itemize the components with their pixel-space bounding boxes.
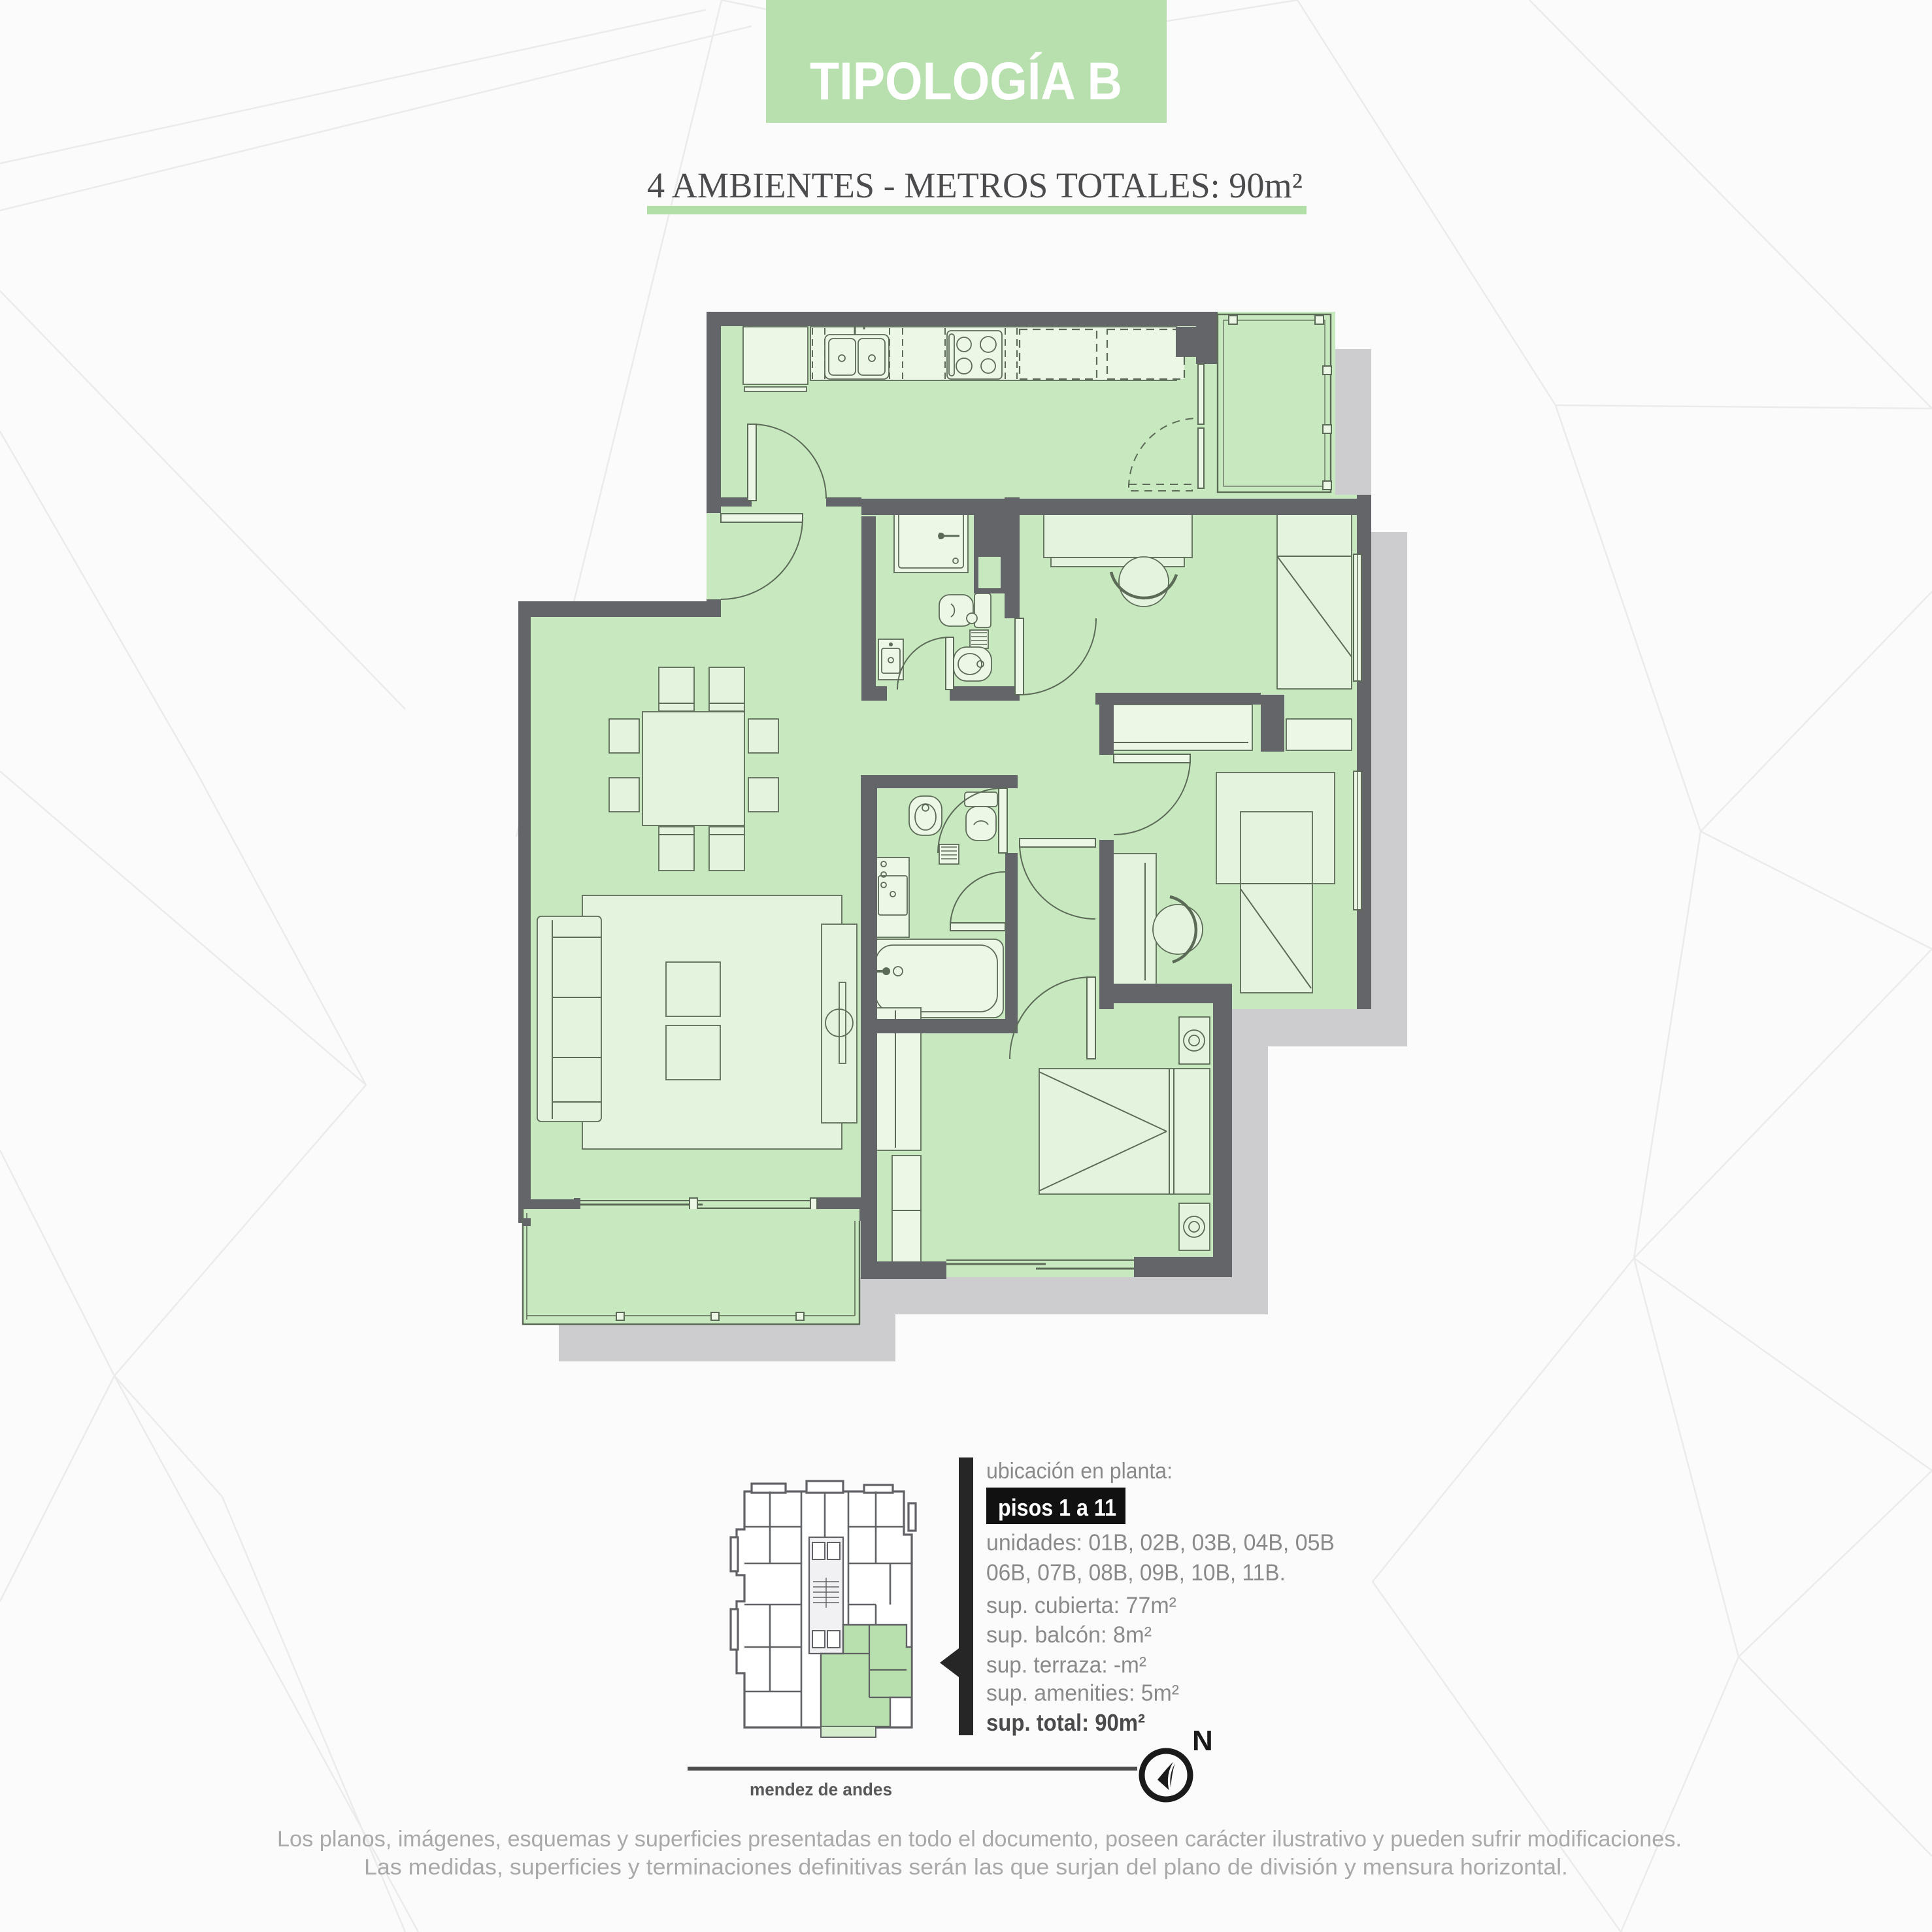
svg-text:TIPOLOGÍA B: TIPOLOGÍA B — [810, 52, 1122, 111]
svg-text:sup. total: 90m²: sup. total: 90m² — [986, 1709, 1145, 1736]
svg-text:sup. balcón: 8m²: sup. balcón: 8m² — [986, 1622, 1152, 1648]
svg-text:06B, 07B, 08B, 09B, 10B, 11B.: 06B, 07B, 08B, 09B, 10B, 11B. — [986, 1560, 1286, 1586]
svg-text:mendez de andes: mendez de andes — [750, 1780, 892, 1799]
svg-text:sup. cubierta: 77m²: sup. cubierta: 77m² — [986, 1593, 1176, 1618]
svg-text:sup. amenities: 5m²: sup. amenities: 5m² — [986, 1680, 1179, 1706]
svg-text:pisos 1 a 11: pisos 1 a 11 — [998, 1494, 1116, 1521]
svg-text:Los planos, imágenes, esquemas: Los planos, imágenes, esquemas y superfi… — [277, 1827, 1682, 1852]
svg-text:N: N — [1192, 1725, 1213, 1757]
svg-text:sup. terraza: -m²: sup. terraza: -m² — [986, 1652, 1146, 1678]
svg-text:ubicación en planta:: ubicación en planta: — [986, 1459, 1173, 1484]
svg-text:unidades: 01B, 02B, 03B, 04B,: unidades: 01B, 02B, 03B, 04B, 05B — [986, 1530, 1335, 1556]
svg-text:4 AMBIENTES - METROS TOTALES:: 4 AMBIENTES - METROS TOTALES: 90m² — [647, 165, 1303, 205]
svg-text:Las medidas, superficies y ter: Las medidas, superficies y terminaciones… — [364, 1855, 1568, 1880]
